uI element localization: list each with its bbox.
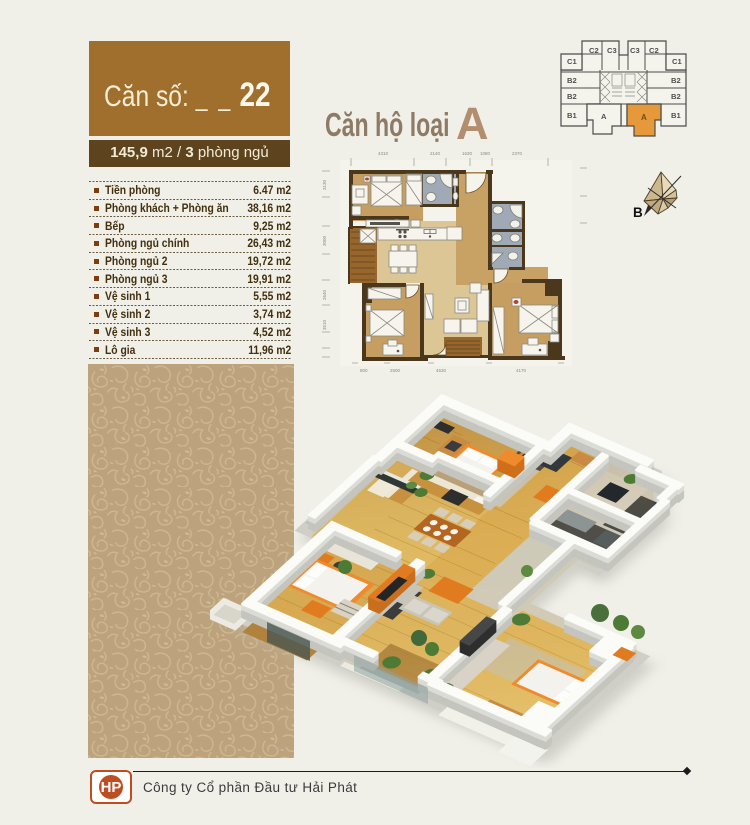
svg-text:B: B xyxy=(633,205,643,220)
svg-text:4170: 4170 xyxy=(516,368,527,373)
svg-text:2140: 2140 xyxy=(430,151,441,156)
svg-text:C2: C2 xyxy=(589,46,599,55)
svg-text:B2: B2 xyxy=(567,92,577,101)
svg-text:C1: C1 xyxy=(567,57,577,66)
svg-text:2370: 2370 xyxy=(512,151,523,156)
svg-text:C3: C3 xyxy=(607,46,617,55)
svg-text:A: A xyxy=(601,112,607,121)
svg-text:C2: C2 xyxy=(649,46,659,55)
svg-text:3000: 3000 xyxy=(322,235,327,246)
svg-text:3510: 3510 xyxy=(322,319,327,330)
svg-text:2500: 2500 xyxy=(390,368,401,373)
svg-text:B1: B1 xyxy=(671,111,681,120)
svg-text:B2: B2 xyxy=(671,92,681,101)
svg-text:HP: HP xyxy=(101,779,122,796)
svg-text:3130: 3130 xyxy=(322,179,327,190)
svg-text:B2: B2 xyxy=(671,76,681,85)
svg-text:B2: B2 xyxy=(567,76,577,85)
svg-text:1630: 1630 xyxy=(462,151,473,156)
svg-text:C3: C3 xyxy=(630,46,640,55)
svg-text:1080: 1080 xyxy=(480,151,491,156)
svg-text:4630: 4630 xyxy=(436,368,447,373)
svg-text:4310: 4310 xyxy=(378,151,389,156)
svg-text:C1: C1 xyxy=(672,57,682,66)
svg-text:800: 800 xyxy=(360,368,368,373)
svg-text:B1: B1 xyxy=(567,111,577,120)
svg-text:A: A xyxy=(641,113,647,122)
svg-text:2640: 2640 xyxy=(322,289,327,300)
